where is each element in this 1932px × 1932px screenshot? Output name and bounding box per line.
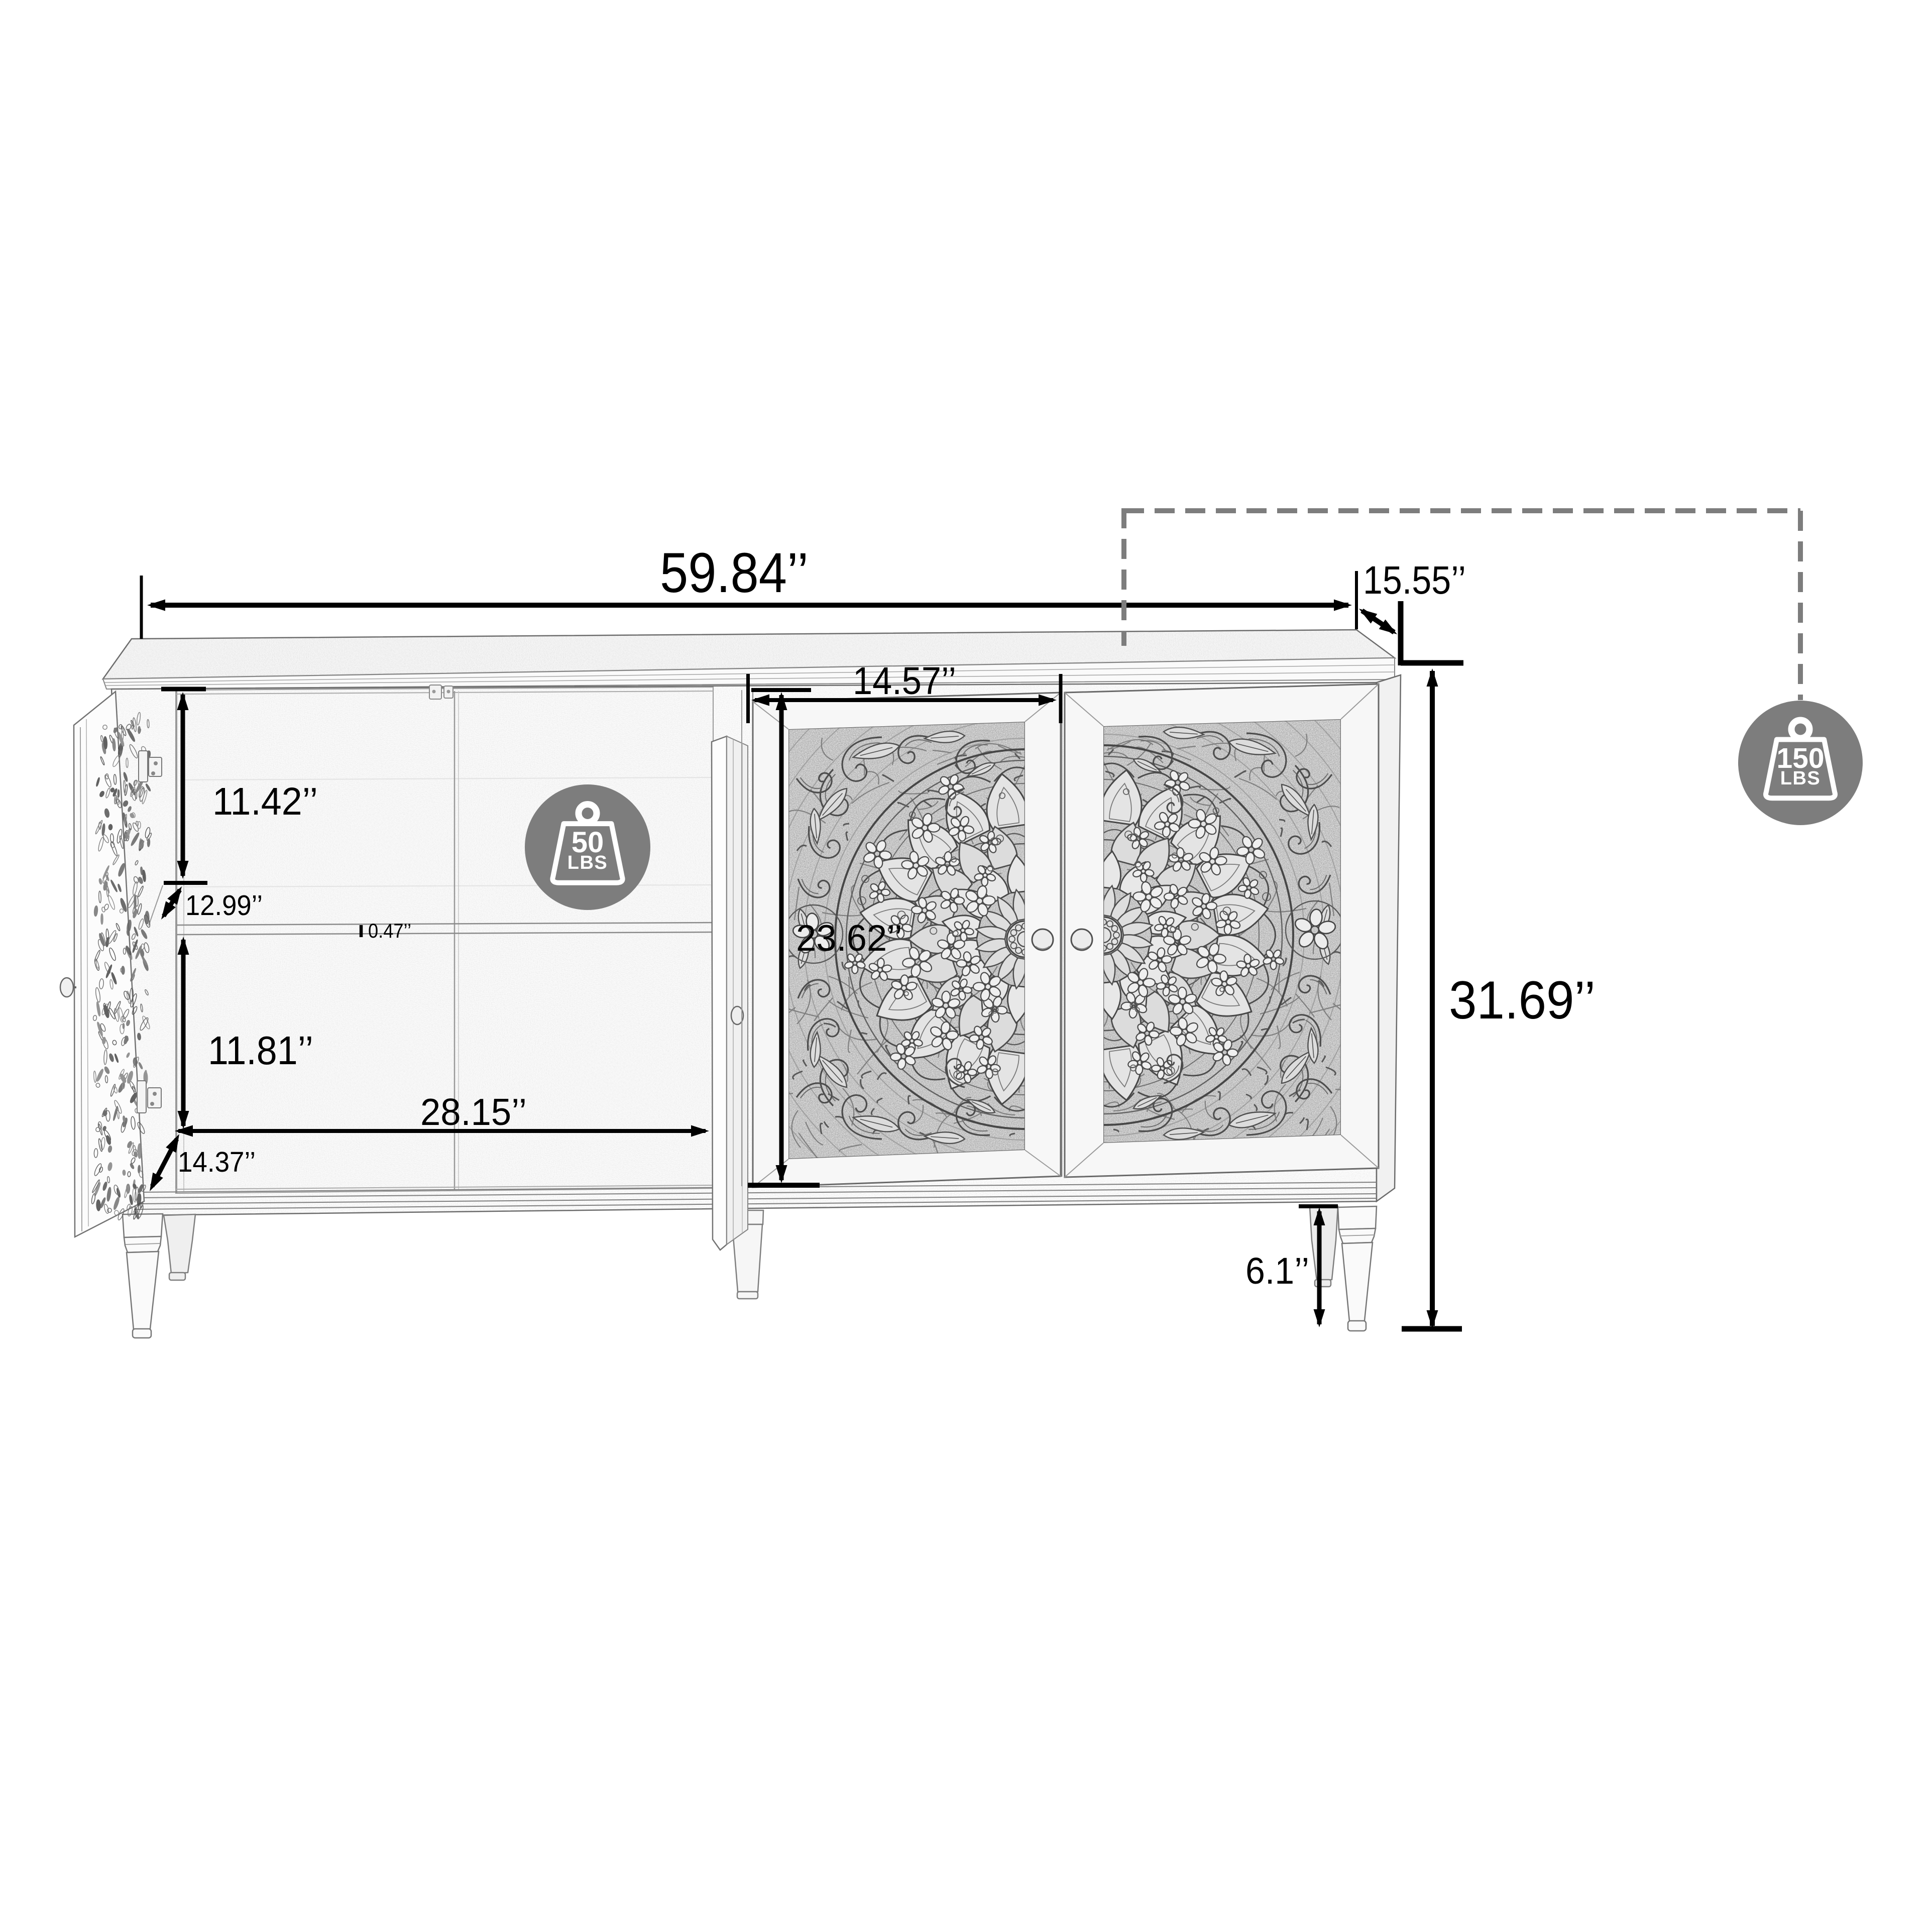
svg-text:6.1’’: 6.1’’ — [1245, 1250, 1309, 1292]
svg-text:28.15’’: 28.15’’ — [420, 1091, 527, 1133]
svg-text:31.69’’: 31.69’’ — [1449, 970, 1596, 1030]
svg-text:59.84’’: 59.84’’ — [660, 541, 809, 604]
svg-text:LBS: LBS — [567, 852, 608, 873]
svg-text:12.99’’: 12.99’’ — [185, 889, 263, 922]
svg-text:11.42’’: 11.42’’ — [212, 780, 318, 823]
svg-text:11.81’’: 11.81’’ — [208, 1028, 313, 1073]
svg-text:23.62’’: 23.62’’ — [796, 918, 902, 959]
svg-text:15.55’’: 15.55’’ — [1363, 557, 1466, 602]
svg-text:0.47’’: 0.47’’ — [368, 920, 411, 942]
svg-text:14.37’’: 14.37’’ — [178, 1146, 256, 1178]
svg-text:LBS: LBS — [1780, 768, 1821, 789]
svg-text:14.57’’: 14.57’’ — [853, 659, 956, 703]
